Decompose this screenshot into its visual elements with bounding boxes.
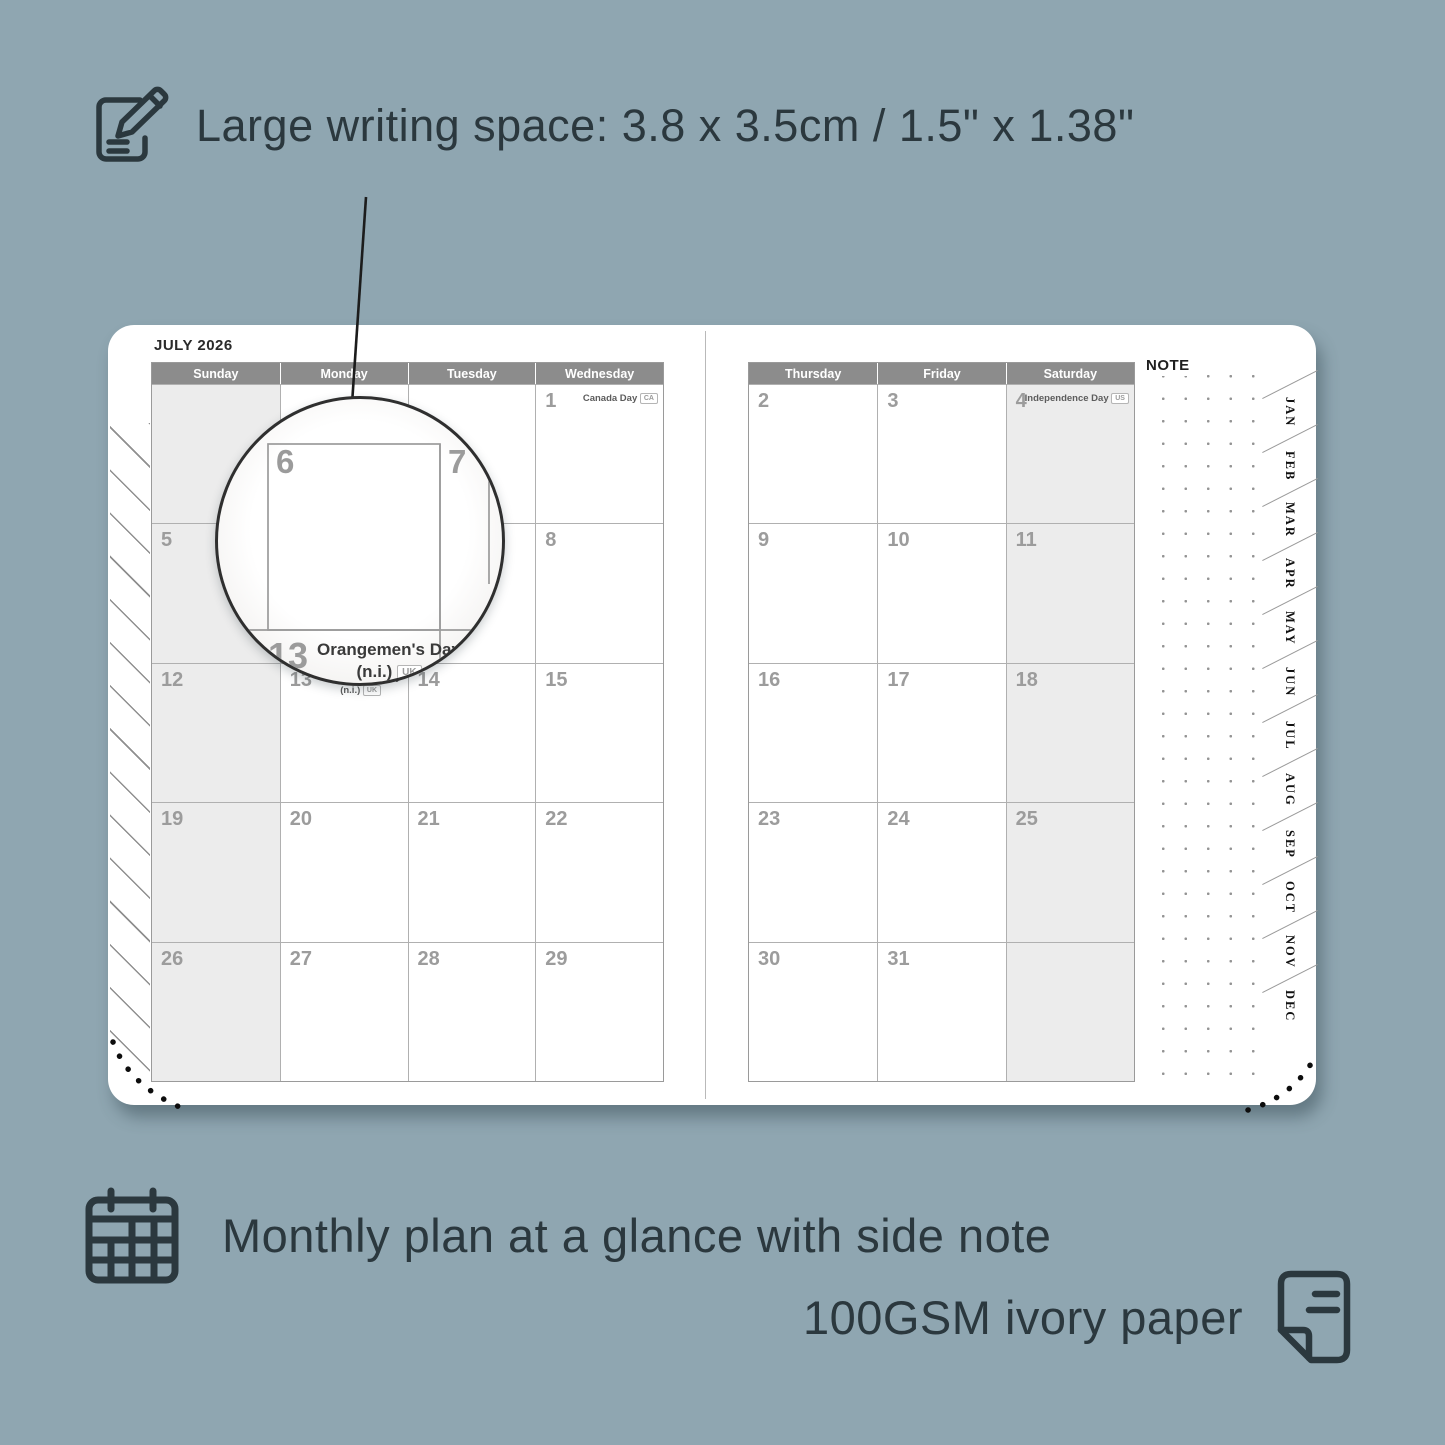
- date-number: 19: [161, 808, 183, 831]
- magnified-holiday-line1: Orangemen's Day: [317, 640, 461, 659]
- date-number: 28: [418, 948, 440, 971]
- date-number: 1: [545, 390, 556, 413]
- month-tab-label: MAY: [1282, 611, 1297, 646]
- country-badge: US: [1111, 393, 1129, 404]
- calendar-cell: 9: [749, 523, 877, 662]
- calendar-cell: 30: [749, 942, 877, 1081]
- calendar-cell: 27: [280, 942, 408, 1081]
- magnified-day-13: 13: [268, 635, 308, 677]
- date-number: 21: [418, 808, 440, 831]
- note-dot-grid: NOTE: [1144, 359, 1260, 1085]
- calendar-grid-icon: [80, 1183, 184, 1287]
- month-title: JULY 2026: [154, 337, 233, 354]
- calendar-cell: 28: [408, 942, 536, 1081]
- month-tab-label: AUG: [1282, 773, 1297, 807]
- month-tab-may: MAY: [1263, 601, 1316, 655]
- calendar-cell: 23: [749, 802, 877, 941]
- date-number: 10: [887, 529, 909, 552]
- month-tab-jul: JUL: [1263, 709, 1316, 763]
- paper-icon: [1271, 1268, 1357, 1366]
- calendar-cell: 14: [408, 663, 536, 802]
- country-badge: UK: [363, 685, 381, 696]
- date-number: 3: [887, 390, 898, 413]
- month-tab-jun: JUN: [1263, 655, 1316, 709]
- month-tab-feb: FEB: [1263, 439, 1316, 493]
- feature-low-text: 100GSM ivory paper: [803, 1290, 1243, 1345]
- date-number: 9: [758, 529, 769, 552]
- month-tab-label: JAN: [1282, 397, 1297, 427]
- calendar-cell: 29: [535, 942, 663, 1081]
- day-header: Thursday: [749, 363, 877, 384]
- month-tab-dec: DEC: [1263, 979, 1316, 1033]
- day-header: Wednesday: [535, 363, 663, 384]
- feature-ivory-paper: 100GSM ivory paper: [803, 1268, 1357, 1366]
- feature-top-text: Large writing space: 3.8 x 3.5cm / 1.5" …: [196, 100, 1134, 152]
- month-tab-label: JUN: [1282, 667, 1297, 697]
- magnified-day-7: 7: [448, 443, 466, 481]
- calendar-cell: 16: [749, 663, 877, 802]
- spread-spine: [705, 331, 706, 1099]
- date-number: 27: [290, 948, 312, 971]
- calendar-cell: 21: [408, 802, 536, 941]
- month-tab-label: OCT: [1282, 881, 1297, 914]
- date-number: 23: [758, 808, 780, 831]
- date-number: 24: [887, 808, 909, 831]
- month-tab-aug: AUG: [1263, 763, 1316, 817]
- date-number: 2: [758, 390, 769, 413]
- month-tab-oct: OCT: [1263, 871, 1316, 925]
- magnifier-circle: 6 7 13 Orangemen's Day (n.i.) UK: [215, 396, 505, 686]
- calendar-cell: 19: [152, 802, 280, 941]
- calendar-cell: 26: [152, 942, 280, 1081]
- date-number: 8: [545, 529, 556, 552]
- magnified-holiday-line2: (n.i.): [356, 662, 392, 681]
- month-tab-strip: JANFEBMARAPRMAYJUNJULAUGSEPOCTNOVDEC: [1263, 385, 1316, 1033]
- day-header: Tuesday: [408, 363, 536, 384]
- month-tab-label: APR: [1282, 558, 1297, 590]
- feature-mid-text: Monthly plan at a glance with side note: [222, 1208, 1051, 1263]
- calendar-cell: 22: [535, 802, 663, 941]
- calendar-cell: 11: [1006, 523, 1134, 662]
- month-tab-label: MAR: [1282, 502, 1297, 538]
- date-number: 26: [161, 948, 183, 971]
- date-number: 31: [887, 948, 909, 971]
- holiday-label: Canada Day CA: [583, 393, 658, 406]
- month-tab-sep: SEP: [1263, 817, 1316, 871]
- date-number: 17: [887, 669, 909, 692]
- notepad-pencil-icon: [82, 78, 178, 174]
- day-header: Friday: [877, 363, 1005, 384]
- date-number: 29: [545, 948, 567, 971]
- calendar-cell: 15: [535, 663, 663, 802]
- calendar-cell: 4Independence Day US: [1006, 384, 1134, 523]
- calendar-cell: 10: [877, 523, 1005, 662]
- date-number: 16: [758, 669, 780, 692]
- magnified-holiday: Orangemen's Day (n.i.) UK: [306, 639, 472, 683]
- month-tab-jan: JAN: [1263, 385, 1316, 439]
- calendar-cell: 3: [877, 384, 1005, 523]
- month-tab-label: NOV: [1282, 935, 1297, 969]
- calendar-cell: 24: [877, 802, 1005, 941]
- date-number: 20: [290, 808, 312, 831]
- calendar-right-page: ThursdayFridaySaturday234Independence Da…: [748, 362, 1135, 1082]
- month-tab-label: DEC: [1282, 990, 1297, 1022]
- date-number: 12: [161, 669, 183, 692]
- month-tab-apr: APR: [1263, 547, 1316, 601]
- date-number: 5: [161, 529, 172, 552]
- month-tab-label: JUL: [1282, 721, 1297, 751]
- holiday-label: Independence Day US: [1025, 393, 1129, 406]
- calendar-cell: 1Canada Day CA: [535, 384, 663, 523]
- calendar-cell: 20: [280, 802, 408, 941]
- feature-large-writing-space: Large writing space: 3.8 x 3.5cm / 1.5" …: [82, 78, 1134, 174]
- calendar-cell: 25: [1006, 802, 1134, 941]
- note-label: NOTE: [1146, 357, 1195, 376]
- day-header: Sunday: [152, 363, 280, 384]
- calendar-cell: [1006, 942, 1134, 1081]
- month-tab-mar: MAR: [1263, 493, 1316, 547]
- calendar-cell: 12: [152, 663, 280, 802]
- month-tab-label: SEP: [1282, 830, 1297, 859]
- date-number: 22: [545, 808, 567, 831]
- page-edge-hatch: [110, 423, 150, 1073]
- country-badge: CA: [640, 393, 658, 404]
- magnified-holiday-badge: UK: [397, 665, 421, 680]
- date-number: 25: [1016, 808, 1038, 831]
- month-tab-nov: NOV: [1263, 925, 1316, 979]
- tab-separator: [1262, 370, 1318, 399]
- day-header: Saturday: [1006, 363, 1134, 384]
- date-number: 30: [758, 948, 780, 971]
- day-header: Monday: [280, 363, 408, 384]
- date-number: 18: [1016, 669, 1038, 692]
- magnified-day-6: 6: [276, 443, 294, 481]
- calendar-cell: 2: [749, 384, 877, 523]
- calendar-cell: 31: [877, 942, 1005, 1081]
- calendar-cell: 18: [1006, 663, 1134, 802]
- date-number: 15: [545, 669, 567, 692]
- date-number: 11: [1016, 529, 1037, 552]
- calendar-cell: 8: [535, 523, 663, 662]
- calendar-cell: 17: [877, 663, 1005, 802]
- month-tab-label: FEB: [1282, 451, 1297, 481]
